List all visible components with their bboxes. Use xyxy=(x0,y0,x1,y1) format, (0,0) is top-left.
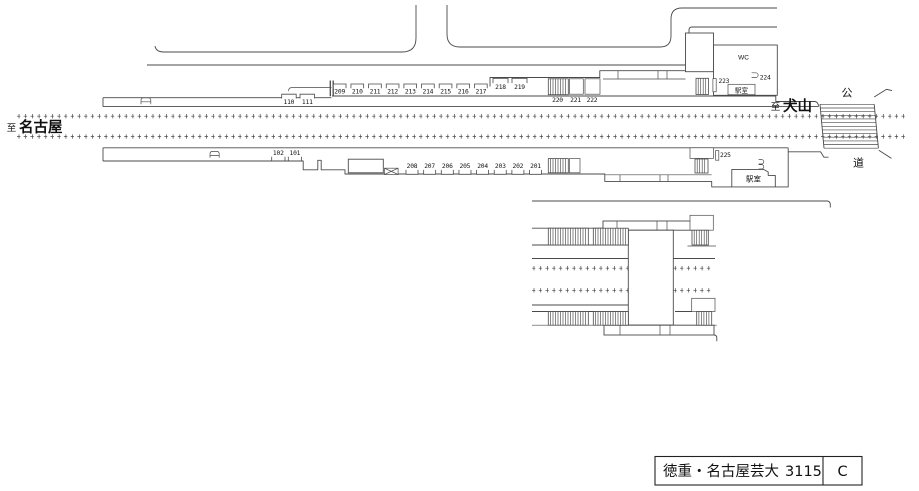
ad-position-210: 210 xyxy=(351,84,364,95)
ad-position-label: 208 xyxy=(407,163,418,170)
public-road-label-top: 公 xyxy=(842,87,853,100)
ad-position-label: 205 xyxy=(460,163,471,170)
ad-position-label: 212 xyxy=(387,88,398,95)
ad-position-211: 211 xyxy=(369,84,382,95)
ad-position-label: 101 xyxy=(290,150,301,157)
detail-lower-cap xyxy=(604,325,714,335)
detail-upper-right-box xyxy=(690,215,713,230)
ad-position-208: 208 xyxy=(406,163,418,174)
stairs-hatch xyxy=(696,78,709,94)
ad-position-label: 102 xyxy=(273,150,284,157)
ad-position-212: 212 xyxy=(386,84,399,95)
ad-position-label: 215 xyxy=(440,88,451,95)
ad-position-label: 201 xyxy=(530,163,541,170)
ad-position-214: 214 xyxy=(422,84,435,95)
stairs-hatch xyxy=(697,312,712,326)
ad-position-label: 202 xyxy=(513,163,524,170)
platform2-corridor xyxy=(605,175,712,182)
ad-position-207: 207 xyxy=(424,163,436,174)
detail-center-tower xyxy=(628,230,673,325)
bench-icon xyxy=(210,151,219,157)
position-225-label: 225 xyxy=(720,152,731,159)
road-outline xyxy=(147,5,777,65)
ad-position-label: 214 xyxy=(423,88,434,95)
ad-position-label: 207 xyxy=(424,163,435,170)
platform2-step-block xyxy=(690,148,713,159)
position-223-box xyxy=(713,79,716,92)
station-building xyxy=(686,33,714,72)
ad-position-219: 219 xyxy=(512,78,527,91)
stairs-hatch xyxy=(593,228,628,245)
stairs-hatch xyxy=(548,228,588,245)
station-layout-drawing: 2092102112122132142152162172182191101111… xyxy=(0,0,919,491)
platform2-shelter xyxy=(348,159,383,173)
detail-track-tick xyxy=(532,288,628,292)
position-222-box xyxy=(585,79,600,94)
road-edge-upper-right xyxy=(447,5,777,47)
ad-position-218: 218 xyxy=(493,78,508,91)
ad-position-label: 216 xyxy=(458,88,469,95)
level-crossing-stripes xyxy=(820,104,878,148)
track-line-2 xyxy=(17,134,905,138)
station-name: 徳重・名古屋芸大 xyxy=(663,463,779,480)
ad-position-label: 204 xyxy=(477,163,488,170)
ad-position-202: 202 xyxy=(512,163,524,174)
ad-position-label: 217 xyxy=(476,88,487,95)
stairs-hatch xyxy=(692,230,708,245)
platform1-canopy xyxy=(289,88,332,92)
detail-track-tick xyxy=(673,266,713,270)
ad-position-217: 217 xyxy=(475,84,488,95)
detail-lower-right-box xyxy=(692,298,715,311)
detail-track-tick xyxy=(673,288,713,292)
ad-position-label: 206 xyxy=(442,163,453,170)
platform1-gate-mark xyxy=(330,81,333,97)
ad-position-label: 219 xyxy=(514,84,525,91)
stairs-hatch xyxy=(548,159,568,173)
stairs-hatch xyxy=(593,312,628,326)
ad-position-label: 203 xyxy=(495,163,506,170)
title-box: 徳重・名古屋芸大3115 C xyxy=(655,457,862,486)
direction-right-name: 犬山 xyxy=(783,97,812,115)
detail-track-tick xyxy=(532,266,628,270)
ad-position-203: 203 xyxy=(494,163,506,174)
public-road-label-bottom: 道 xyxy=(853,156,864,170)
ad-position-213: 213 xyxy=(404,84,417,95)
platform2-stair-box xyxy=(569,159,580,173)
ad-position-201: 201 xyxy=(530,163,542,174)
title-box-station: 徳重・名古屋芸大3115 xyxy=(663,463,822,480)
position-221-label: 221 xyxy=(570,97,581,104)
wc-label: WC xyxy=(738,55,749,62)
ad-position-101: 101 xyxy=(288,150,301,161)
direction-left-name: 名古屋 xyxy=(19,118,63,136)
platform-1 xyxy=(103,33,819,107)
ad-position-label: 213 xyxy=(405,88,416,95)
ad-position-label: 209 xyxy=(334,88,345,95)
ad-position-204: 204 xyxy=(477,163,489,174)
platform1-corridor xyxy=(603,71,686,79)
crossing-gate-icon xyxy=(385,168,399,174)
bracket-pair-icon xyxy=(759,160,764,169)
ad-position-209: 209 xyxy=(333,84,346,95)
ad-position-label: 110 xyxy=(284,99,295,106)
road-edge-inner xyxy=(689,27,777,33)
platform2-right-extension xyxy=(788,152,828,157)
office-bottom-label: 駅室 xyxy=(746,173,761,183)
direction-right-prefix: 至 xyxy=(771,102,781,113)
ad-position-216: 216 xyxy=(457,84,470,95)
detail-bottom-hook xyxy=(714,335,717,341)
position-225-box xyxy=(716,151,719,161)
ad-position-111: 111 xyxy=(300,94,315,106)
ad-position-102: 102 xyxy=(272,150,285,161)
ad-position-label: 211 xyxy=(370,88,381,95)
bench-icon xyxy=(141,98,151,104)
title-box-grade: C xyxy=(837,464,847,480)
position-221-box xyxy=(569,79,583,94)
position-222-label: 222 xyxy=(587,97,598,104)
office-top-label: 駅室 xyxy=(735,85,749,94)
ad-position-label: 210 xyxy=(352,88,363,95)
ad-position-206: 206 xyxy=(441,163,453,174)
ad-position-110: 110 xyxy=(282,94,297,106)
ad-position-label: 111 xyxy=(302,99,313,106)
road-edge-upper-left xyxy=(155,5,416,52)
stairs-hatch xyxy=(548,79,568,95)
position-224-label: 224 xyxy=(760,75,771,82)
stairs-hatch xyxy=(548,312,588,326)
ad-position-215: 215 xyxy=(439,84,452,95)
position-223-label: 223 xyxy=(719,78,730,85)
track-line-1 xyxy=(17,114,905,118)
station-code: 3115 xyxy=(785,464,822,480)
direction-left-prefix: 至 xyxy=(7,123,17,134)
ad-position-label: 218 xyxy=(495,84,506,91)
stairs-hatch xyxy=(695,159,708,173)
ad-position-205: 205 xyxy=(459,163,471,174)
position-220-label: 220 xyxy=(552,97,563,104)
detail-top-line xyxy=(532,201,830,208)
